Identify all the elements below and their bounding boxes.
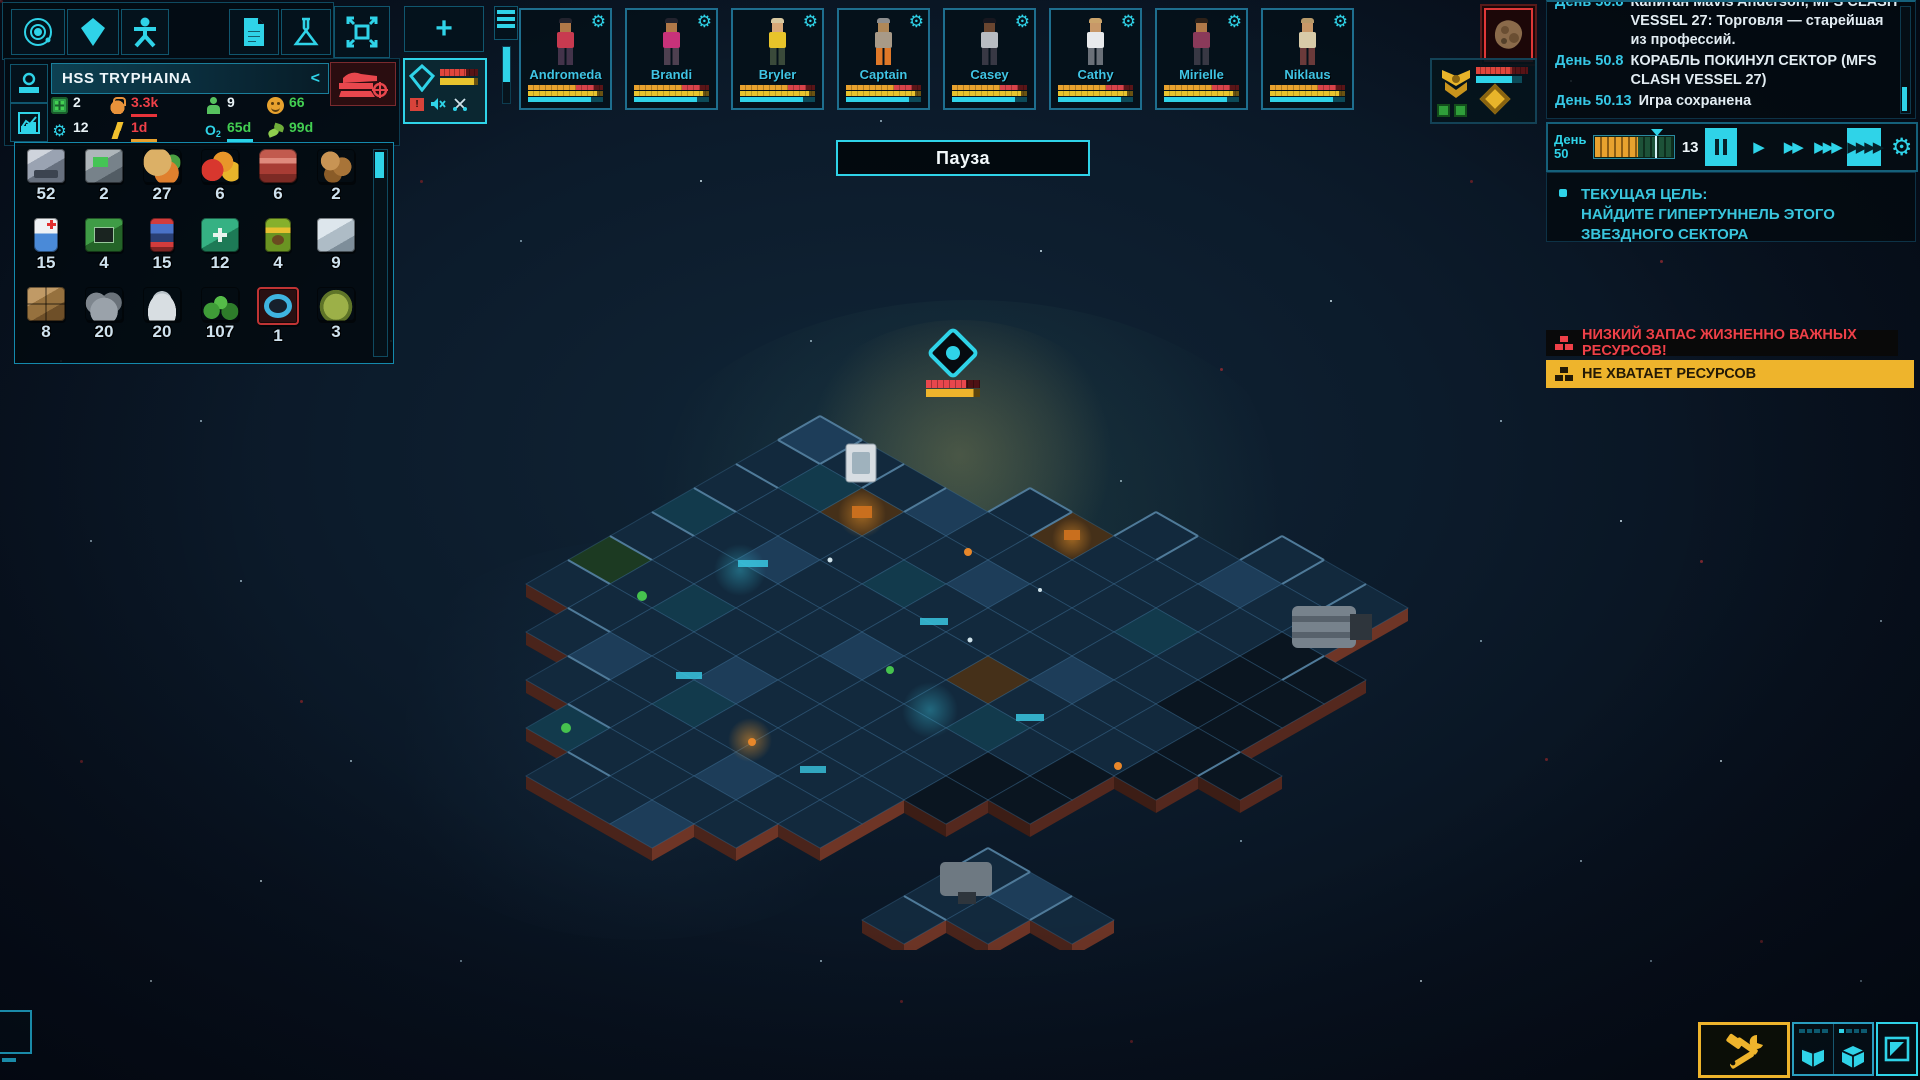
speed-max-button[interactable]: ▶▶▶▶ xyxy=(1847,128,1881,166)
ship-stat: 3.3k xyxy=(109,94,205,117)
resource-item[interactable]: 107 xyxy=(201,287,239,356)
expand-icon xyxy=(344,14,380,50)
resource-item[interactable]: 12 xyxy=(201,218,239,287)
crew-strip: ⚙ Andromeda ⚙ Brandi xyxy=(519,8,1354,110)
pause-banner-label: Пауза xyxy=(936,148,990,169)
resource-count: 8 xyxy=(41,322,50,342)
log-entry-text: Капитан Mavis Anderson, MFS CLASH VESSEL… xyxy=(1631,0,1900,50)
tick-count: 13 xyxy=(1682,139,1699,156)
resources-grid: 52 2 27 6 6 xyxy=(17,149,369,356)
crew-status-bars xyxy=(1164,85,1239,103)
research-button[interactable] xyxy=(281,9,331,55)
resource-count: 1 xyxy=(273,326,282,346)
partial-panel-tick xyxy=(2,1058,16,1062)
crew-name: Cathy xyxy=(1051,67,1140,82)
crew-name: Bryler xyxy=(733,67,822,82)
resource-icon xyxy=(85,218,123,252)
resource-count: 12 xyxy=(211,253,230,273)
crew-name: Mirielle xyxy=(1157,67,1246,82)
event-log-list: День 50.8 Капитан Mavis Anderson, MFS CL… xyxy=(1547,0,1915,111)
play-button[interactable]: ▶ xyxy=(1743,130,1772,164)
crew-status-bars xyxy=(740,85,815,103)
resource-count: 3 xyxy=(331,322,340,342)
resource-count: 107 xyxy=(206,322,234,342)
stat-icon xyxy=(205,97,222,114)
resource-item[interactable]: 15 xyxy=(34,218,58,287)
crew-status-bars xyxy=(952,85,1027,103)
stat-value: 9 xyxy=(227,94,235,110)
crew-settings-gear-icon[interactable]: ⚙ xyxy=(591,12,606,32)
day-progress-bar xyxy=(1593,135,1675,159)
alert-text: НЕ ХВАТАЕТ РЕСУРСОВ xyxy=(1582,366,1756,382)
day-counter: День 50 xyxy=(1554,133,1587,161)
weapons-button[interactable] xyxy=(330,62,396,106)
crew-name: Captain xyxy=(839,67,928,82)
resource-blocks-icon xyxy=(1554,336,1574,351)
settings-gear-button[interactable]: ⚙ xyxy=(1887,130,1916,164)
resource-item[interactable]: 27 xyxy=(143,149,181,218)
resources-view-button[interactable] xyxy=(67,9,119,55)
stat-underline xyxy=(73,114,99,117)
crew-sprite xyxy=(873,18,895,65)
ship-settings-button[interactable] xyxy=(10,64,48,103)
hammer-wrench-icon xyxy=(1721,1031,1767,1069)
crew-sprite xyxy=(1085,18,1107,65)
minimize-hud-button[interactable] xyxy=(1876,1022,1918,1076)
day-value: 50 xyxy=(1554,147,1587,161)
marker-hull-bar xyxy=(926,380,980,388)
ship-stat: 99d xyxy=(267,119,337,142)
crew-card[interactable]: ⚙ Brandi xyxy=(625,8,718,110)
other-ship-tab[interactable] xyxy=(1430,58,1537,124)
build-mode-button[interactable] xyxy=(1698,1022,1790,1078)
resource-icon xyxy=(143,149,181,183)
pause-banner: Пауза xyxy=(836,140,1090,176)
goal-title: ТЕКУЩАЯ ЦЕЛЬ: xyxy=(1581,185,1905,205)
own-ship-tab[interactable]: ! xyxy=(403,58,487,124)
resource-icon xyxy=(150,218,174,252)
missing-resources-alert[interactable]: НЕ ХВАТАЕТ РЕСУРСОВ xyxy=(1546,360,1914,388)
crew-view-button[interactable] xyxy=(121,9,169,55)
relation-icon xyxy=(1454,104,1467,117)
flask-icon xyxy=(291,16,321,48)
resource-icon xyxy=(143,287,181,321)
goal-text: НАЙДИТЕ ГИПЕРТУННЕЛЬ ЭТОГО ЗВЕЗДНОГО СЕК… xyxy=(1581,205,1905,245)
resource-icon xyxy=(257,287,299,325)
stat-value: 66 xyxy=(289,94,305,110)
resource-item[interactable]: 3 xyxy=(317,287,355,356)
critical-resource-alert[interactable]: НИЗКИЙ ЗАПАС ЖИЗНЕННО ВАЖНЫХ РЕСУРСОВ! xyxy=(1546,330,1898,356)
crew-name: Niklaus xyxy=(1263,67,1352,82)
scissors-icon xyxy=(452,97,468,111)
stat-value: 99d xyxy=(289,119,313,135)
crystal-icon xyxy=(78,16,108,48)
resource-icon xyxy=(317,149,355,183)
log-entry-text: Игра сохранена xyxy=(1639,92,1899,111)
stat-icon xyxy=(109,122,126,139)
ship-stat: 9 xyxy=(205,94,267,117)
asteroid-icon xyxy=(1492,17,1526,53)
crew-card[interactable]: ⚙ Captain xyxy=(837,8,930,110)
stat-underline xyxy=(289,114,315,117)
resource-count: 6 xyxy=(273,184,282,204)
crew-scrollbar[interactable] xyxy=(502,46,511,104)
chart-icon xyxy=(17,111,41,135)
stat-icon: O2 xyxy=(205,122,222,139)
crew-settings-gear-icon[interactable]: ⚙ xyxy=(803,12,818,32)
resource-icon xyxy=(201,287,239,321)
log-entry-text: КОРАБЛЬ ПОКИНУЛ СЕКТОР (MFS CLASH VESSEL… xyxy=(1631,52,1900,90)
crew-card[interactable]: ⚙ Andromeda xyxy=(519,8,612,110)
resource-icon xyxy=(34,218,58,252)
ship-stats-grid: 2 3.3k 9 xyxy=(51,93,351,143)
crew-scroll-gauge xyxy=(494,6,518,40)
log-entry-day: День 50.8 xyxy=(1555,52,1624,90)
stat-underline xyxy=(227,114,253,117)
crew-card[interactable]: ⚙ Casey xyxy=(943,8,1036,110)
log-scrollbar-thumb[interactable] xyxy=(1902,87,1907,111)
resource-count: 20 xyxy=(95,322,114,342)
resource-item[interactable]: 2 xyxy=(85,149,123,218)
own-ship-bars xyxy=(440,69,478,87)
resource-count: 15 xyxy=(37,253,56,273)
resource-item[interactable]: 15 xyxy=(150,218,174,287)
crew-card[interactable]: ⚙ Mirielle xyxy=(1155,8,1248,110)
view-level-dashes xyxy=(1839,1029,1868,1033)
log-entry-day: День 50.8 xyxy=(1555,0,1624,50)
resource-icon xyxy=(201,149,239,183)
faction-badge-icon xyxy=(1437,66,1475,102)
view-mode-panel xyxy=(1792,1022,1874,1076)
ship-name: HSS TRYPHAINA xyxy=(52,70,311,87)
crew-status-bars xyxy=(528,85,603,103)
resource-count: 15 xyxy=(153,253,172,273)
crew-settings-gear-icon[interactable]: ⚙ xyxy=(1227,12,1242,32)
stat-icon xyxy=(267,97,284,114)
ship-stat: 2 xyxy=(51,94,109,117)
ship-stat: O2 65d xyxy=(205,119,267,142)
crew-settings-gear-icon[interactable]: ⚙ xyxy=(1015,12,1030,32)
day-label: День xyxy=(1554,133,1587,147)
view-level-dashes xyxy=(1799,1029,1828,1033)
stat-underline xyxy=(131,114,157,117)
log-entry[interactable]: День 50.8 Капитан Mavis Anderson, MFS CL… xyxy=(1555,0,1899,50)
ship-stat: ⚙ 12 xyxy=(51,119,109,142)
ship-isometric-view[interactable] xyxy=(500,410,1420,950)
crew-settings-gear-icon[interactable]: ⚙ xyxy=(1121,12,1136,32)
crew-strip-scroll[interactable] xyxy=(494,6,518,104)
resource-icon xyxy=(265,218,291,252)
diamond-icon xyxy=(1479,83,1510,114)
ship-stat: 66 xyxy=(267,94,337,117)
resource-icon xyxy=(317,218,355,252)
ship-stat: 1d xyxy=(109,119,205,142)
marker-triangle-icon xyxy=(1651,129,1663,142)
corner-triangle-icon xyxy=(1884,1036,1910,1062)
collapse-panel-button[interactable]: < xyxy=(311,70,328,88)
resource-item[interactable]: 52 xyxy=(27,149,65,218)
alert-text: НИЗКИЙ ЗАПАС ЖИЗНЕННО ВАЖНЫХ РЕСУРСОВ! xyxy=(1582,327,1898,359)
resource-count: 20 xyxy=(153,322,172,342)
person-icon xyxy=(131,16,159,48)
resource-icon xyxy=(85,149,123,183)
resource-count: 9 xyxy=(331,253,340,273)
speed-2x-button[interactable]: ▶▶ xyxy=(1778,130,1807,164)
resource-item[interactable]: 1 xyxy=(257,287,299,356)
pause-button[interactable] xyxy=(1705,128,1738,166)
resource-item[interactable]: 4 xyxy=(265,218,291,287)
resources-scrollbar[interactable] xyxy=(373,149,388,357)
crew-card[interactable]: ⚙ Niklaus xyxy=(1261,8,1354,110)
resource-item[interactable]: 6 xyxy=(259,149,297,218)
asteroid-tab-button[interactable] xyxy=(1480,4,1537,66)
hull-view-button[interactable] xyxy=(1794,1024,1833,1074)
ship-stats-button[interactable] xyxy=(10,103,48,142)
log-entry[interactable]: День 50.8 КОРАБЛЬ ПОКИНУЛ СЕКТОР (MFS CL… xyxy=(1555,52,1899,90)
time-control-panel: День 50 13 ▶ ▶▶ ▶▶▶ ▶▶▶▶ ⚙ xyxy=(1546,122,1918,172)
crew-card[interactable]: ⚙ Bryler xyxy=(731,8,824,110)
crew-sprite xyxy=(555,18,577,65)
resource-blocks-icon xyxy=(1554,367,1574,382)
resource-item[interactable]: 8 xyxy=(27,287,65,356)
alert-icon: ! xyxy=(410,98,424,111)
crew-sprite xyxy=(1191,18,1213,65)
crew-status-bars xyxy=(1270,85,1345,103)
resource-icon xyxy=(201,218,239,252)
document-icon xyxy=(241,16,267,48)
crew-name: Brandi xyxy=(627,67,716,82)
crew-status-bars xyxy=(846,85,921,103)
log-scrollbar[interactable] xyxy=(1900,6,1911,114)
crew-sprite xyxy=(979,18,1001,65)
resource-count: 4 xyxy=(99,253,108,273)
crew-settings-gear-icon[interactable]: ⚙ xyxy=(909,12,924,32)
crew-name: Casey xyxy=(945,67,1034,82)
stat-value: 65d xyxy=(227,119,251,135)
log-entry[interactable]: День 50.13 Игра сохранена xyxy=(1555,92,1899,111)
log-entry-day: День 50.13 xyxy=(1555,92,1632,111)
selected-ship-marker[interactable] xyxy=(926,330,980,397)
crew-status-bars xyxy=(634,85,709,103)
resource-icon xyxy=(317,287,355,321)
stat-icon xyxy=(267,122,284,139)
orbit-icon xyxy=(21,15,55,49)
crew-card[interactable]: ⚙ Cathy xyxy=(1049,8,1142,110)
resource-count: 4 xyxy=(273,253,282,273)
stat-value: 3.3k xyxy=(131,94,158,110)
resource-icon xyxy=(27,149,65,183)
crew-name: Andromeda xyxy=(521,67,610,82)
crew-settings-gear-icon[interactable]: ⚙ xyxy=(697,12,712,32)
resource-count: 6 xyxy=(215,184,224,204)
resource-item[interactable]: 20 xyxy=(143,287,181,356)
fullscreen-map-button[interactable] xyxy=(334,6,390,58)
plus-icon: + xyxy=(435,16,453,42)
main-toolbar xyxy=(2,2,334,60)
crew-status-bars xyxy=(1058,85,1133,103)
muted-speaker-icon xyxy=(430,97,446,111)
open-box-icon xyxy=(1800,1045,1826,1069)
ship-header[interactable]: HSS TRYPHAINA < xyxy=(51,63,329,94)
goal-bullet-icon xyxy=(1559,189,1567,197)
resource-icon xyxy=(85,287,123,321)
crew-sprite xyxy=(1297,18,1319,65)
resources-scrollbar-thumb[interactable] xyxy=(375,152,384,178)
ship-diamond-icon xyxy=(409,64,435,92)
resource-count: 2 xyxy=(331,184,340,204)
resource-count: 27 xyxy=(153,184,172,204)
day-progress-fill xyxy=(1595,137,1639,157)
resource-count: 2 xyxy=(99,184,108,204)
stat-icon: ⚙ xyxy=(51,122,68,139)
current-goal-panel: ТЕКУЩАЯ ЦЕЛЬ: НАЙДИТЕ ГИПЕРТУННЕЛЬ ЭТОГО… xyxy=(1546,172,1916,242)
add-tab-button[interactable]: + xyxy=(404,6,484,52)
trade-icon xyxy=(1437,104,1450,117)
other-ship-bars xyxy=(1476,67,1528,85)
cube-icon xyxy=(1840,1045,1866,1069)
resource-item[interactable]: 6 xyxy=(201,149,239,218)
resource-item[interactable]: 20 xyxy=(85,287,123,356)
conditions-button[interactable] xyxy=(229,9,279,55)
roof-view-button[interactable] xyxy=(1833,1024,1873,1074)
resources-panel: 52 2 27 6 6 xyxy=(14,142,394,364)
resource-icon xyxy=(259,149,297,183)
stat-icon xyxy=(109,97,126,114)
resource-item[interactable]: 4 xyxy=(85,218,123,287)
stat-value: 1d xyxy=(131,119,147,135)
game-screen: Пауза HSS TRYPHAINA < xyxy=(0,0,1920,1080)
crew-sprite xyxy=(767,18,789,65)
event-log-panel[interactable]: День 50.8 Капитан Mavis Anderson, MFS CL… xyxy=(1546,0,1916,119)
marker-power-bar xyxy=(926,389,980,397)
resource-item[interactable]: 9 xyxy=(317,218,355,287)
crew-sprite xyxy=(661,18,683,65)
resource-item[interactable]: 2 xyxy=(317,149,355,218)
stat-value: 2 xyxy=(73,94,81,110)
system-view-button[interactable] xyxy=(11,9,65,55)
turret-icon xyxy=(337,68,389,100)
stat-value: 12 xyxy=(73,119,89,135)
partial-panel-fragment xyxy=(0,1010,32,1054)
target-diamond-icon xyxy=(926,326,980,380)
sliders-icon xyxy=(17,71,41,97)
resource-icon xyxy=(27,287,65,321)
speed-3x-button[interactable]: ▶▶▶ xyxy=(1813,130,1842,164)
stat-icon xyxy=(51,97,68,114)
crew-settings-gear-icon[interactable]: ⚙ xyxy=(1333,12,1348,32)
resource-count: 52 xyxy=(37,184,56,204)
